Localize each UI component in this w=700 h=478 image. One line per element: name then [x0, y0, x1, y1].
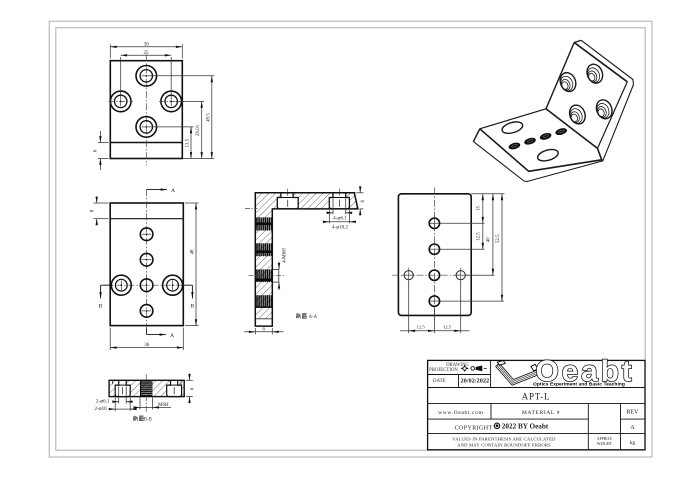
svg-text:kg: kg — [630, 440, 636, 446]
svg-text:2-⌀6.1: 2-⌀6.1 — [96, 400, 110, 405]
svg-text:M6H: M6H — [158, 403, 169, 408]
svg-text:12.5: 12.5 — [443, 325, 452, 330]
svg-text:MATERIAL #: MATERIAL # — [522, 410, 560, 416]
svg-text:DATE: DATE — [433, 379, 446, 384]
svg-text:VALUES IN PARENTHESIS ARE CALC: VALUES IN PARENTHESIS ARE CALCULATED — [452, 437, 556, 442]
svg-text:B-B: B-B — [144, 418, 152, 423]
svg-text:20/02/2022: 20/02/2022 — [460, 378, 489, 385]
svg-text:REV: REV — [626, 410, 639, 416]
svg-text:15: 15 — [477, 206, 482, 212]
svg-text:Optics Experiment and Basic Te: Optics Experiment and Basic Teaching — [533, 381, 625, 387]
svg-text:PROJECTION: PROJECTION — [429, 368, 458, 373]
svg-text:4-⌀10.2: 4-⌀10.2 — [332, 226, 348, 231]
svg-text:AND MAY CONTAIN ROUNDOFF ERROR: AND MAY CONTAIN ROUNDOFF ERRORS — [457, 442, 551, 447]
svg-text:4-M6H: 4-M6H — [283, 248, 288, 263]
svg-text:4-⌀6.1: 4-⌀6.1 — [333, 216, 347, 221]
svg-text:A: A — [170, 333, 174, 339]
svg-text:13.5: 13.5 — [186, 138, 191, 147]
svg-text:2-⌀10: 2-⌀10 — [95, 407, 108, 412]
svg-text:COPYRIGHT: COPYRIGHT — [455, 426, 493, 432]
svg-text:36: 36 — [144, 343, 150, 348]
svg-text:48: 48 — [190, 249, 195, 255]
svg-text:36: 36 — [144, 42, 150, 47]
svg-text:49.5: 49.5 — [206, 113, 211, 122]
svg-text:B: B — [99, 304, 103, 310]
svg-text:12.5: 12.5 — [417, 325, 426, 330]
svg-text:2022 BY Oeabt: 2022 BY Oeabt — [502, 422, 549, 430]
svg-text:12.5: 12.5 — [477, 232, 482, 241]
svg-text:40: 40 — [487, 237, 492, 243]
svg-text:A: A — [171, 188, 175, 194]
svg-text:A-A: A-A — [309, 315, 318, 320]
svg-text:52.5: 52.5 — [496, 234, 501, 243]
svg-text:29.01: 29.01 — [196, 124, 201, 136]
svg-text:APPROX: APPROX — [597, 437, 612, 441]
svg-text:A: A — [630, 425, 635, 431]
svg-text:B: B — [190, 304, 194, 310]
svg-text:www.Oeabt.com: www.Oeabt.com — [438, 410, 483, 416]
svg-text:APT-L: APT-L — [522, 391, 551, 401]
svg-text:25: 25 — [144, 51, 150, 56]
svg-text:WEIGHT: WEIGHT — [597, 442, 613, 446]
